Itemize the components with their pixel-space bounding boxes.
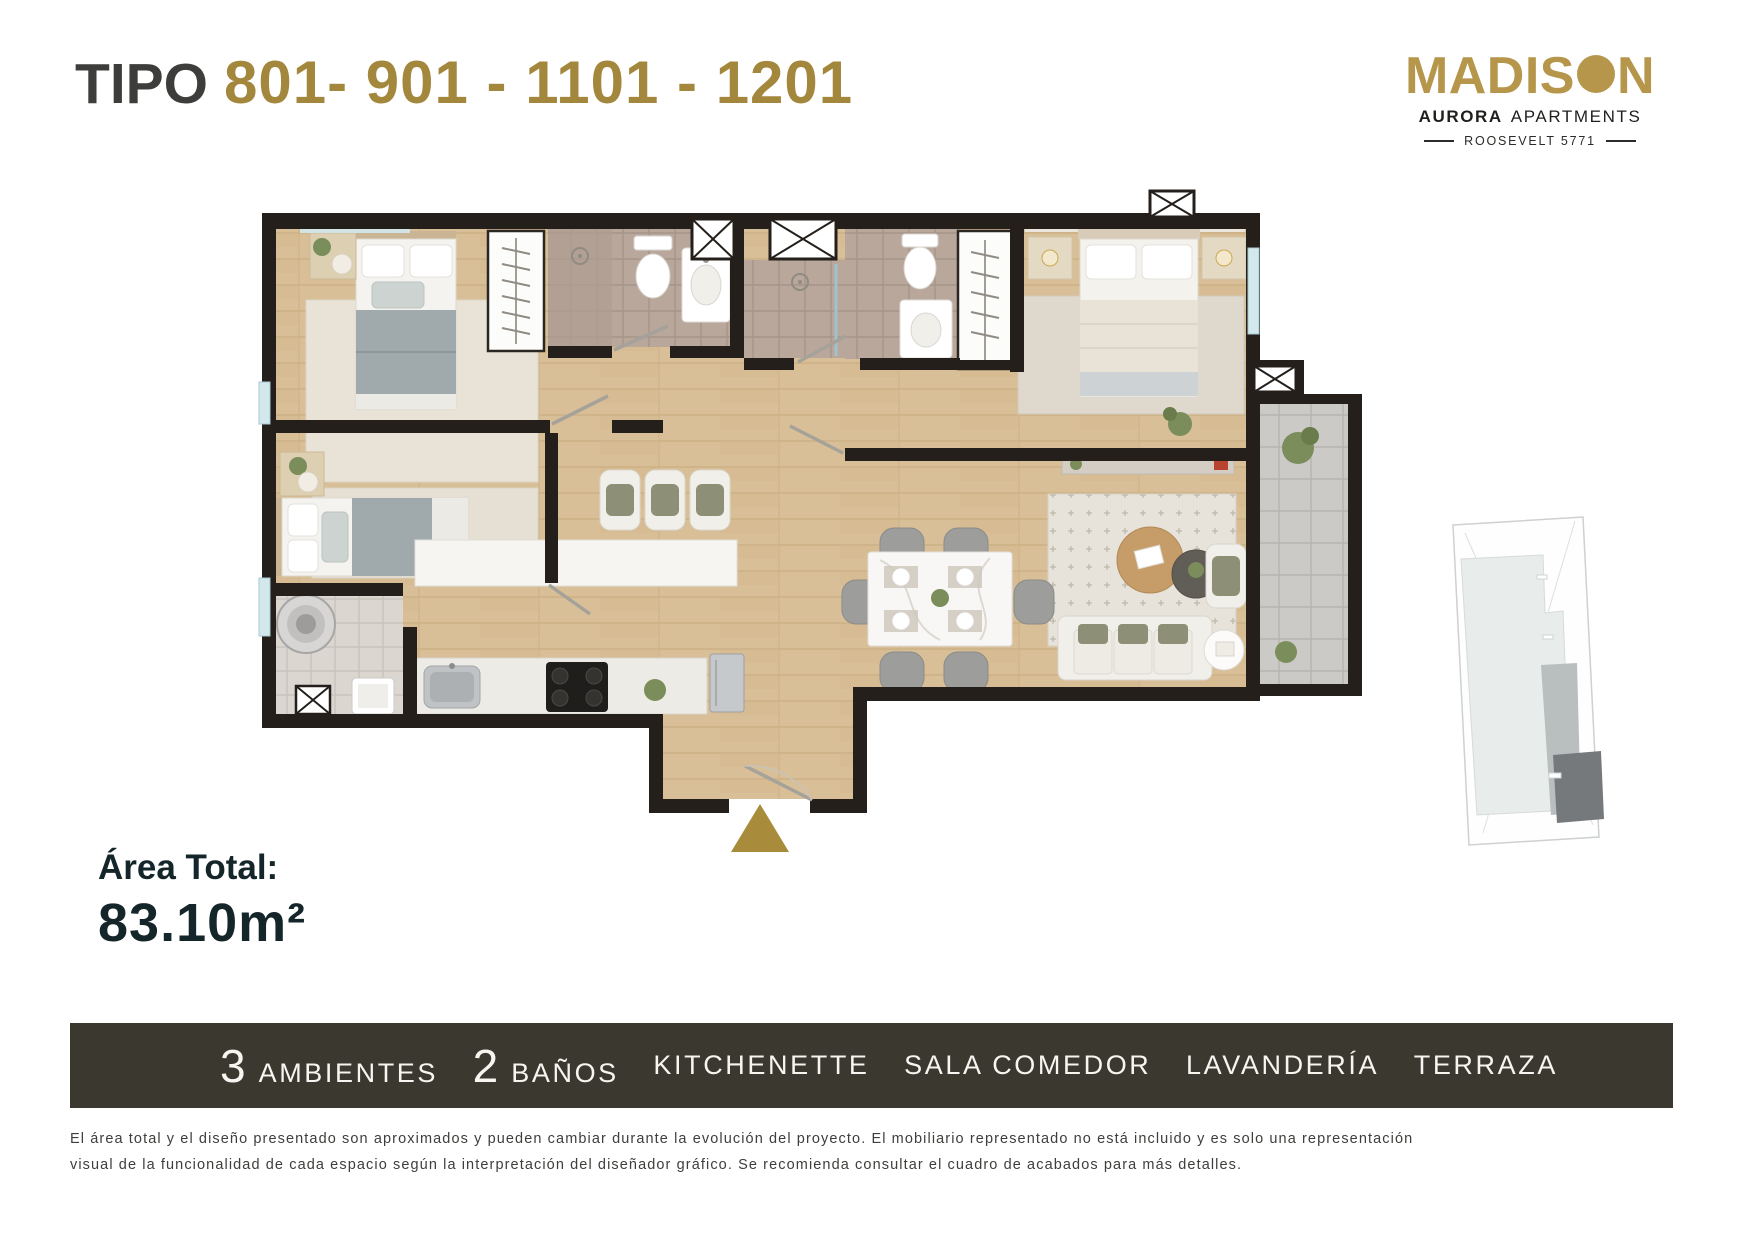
feature-terraza: TERRAZA <box>1414 1050 1558 1081</box>
disclaimer-line-1: El área total y el diseño presentado son… <box>70 1126 1720 1152</box>
brand-address: ROOSEVELT 5771 <box>1464 134 1596 148</box>
closet-2-icon <box>958 231 1012 369</box>
hall-chairs <box>600 470 730 530</box>
feature-lavanderia: LAVANDERÍA <box>1186 1050 1379 1081</box>
feature-label: BAÑOS <box>511 1058 619 1089</box>
page-title: TIPO 801- 901 - 1101 - 1201 <box>75 48 853 117</box>
disclaimer-line-2: visual de la funcionalidad de cada espac… <box>70 1152 1720 1178</box>
total-area-block: Área Total: 83.10m² <box>98 848 306 954</box>
bedroom-2-nightstand-icon <box>280 452 324 496</box>
feature-number: 3 <box>220 1039 246 1093</box>
site-plan-thumbnail <box>1453 517 1604 845</box>
kitchenette-icons <box>415 654 744 714</box>
feature-banos: 2 BAÑOS <box>473 1039 619 1093</box>
feature-label: SALA COMEDOR <box>904 1050 1151 1081</box>
brand-logo: MADISN AURORAAPARTMENTS ROOSEVELT 5771 <box>1384 50 1676 148</box>
brand-tagline: AURORAAPARTMENTS <box>1384 107 1676 127</box>
brand-tagline-bold: AURORA <box>1419 107 1503 126</box>
entrance-arrow-icon <box>731 804 789 852</box>
total-area-label: Área Total: <box>98 848 306 888</box>
brand-tagline-rest: APARTMENTS <box>1511 107 1642 126</box>
feature-label: LAVANDERÍA <box>1186 1050 1379 1081</box>
brand-name: MADISN <box>1384 50 1676 102</box>
address-rule-left <box>1424 140 1454 142</box>
address-rule-right <box>1606 140 1636 142</box>
features-bar: 3 AMBIENTES 2 BAÑOS KITCHENETTE SALA COM… <box>70 1023 1673 1108</box>
disclaimer-text: El área total y el diseño presentado son… <box>70 1126 1720 1178</box>
logo-o-disc-icon <box>1577 55 1615 93</box>
closet-1-icon <box>488 231 544 351</box>
feature-kitchenette: KITCHENETTE <box>653 1050 869 1081</box>
total-area-value: 83.10m² <box>98 892 306 954</box>
brand-name-part1: MADIS <box>1405 47 1575 105</box>
feature-ambientes: 3 AMBIENTES <box>220 1039 438 1093</box>
title-unit-numbers: 801- 901 - 1101 - 1201 <box>224 48 853 117</box>
bedroom-1-bed-icon <box>356 231 456 409</box>
feature-sala-comedor: SALA COMEDOR <box>904 1050 1151 1081</box>
feature-number: 2 <box>473 1039 499 1093</box>
title-prefix: TIPO <box>75 51 208 117</box>
brand-address-row: ROOSEVELT 5771 <box>1384 134 1676 148</box>
flyer-page: TIPO 801- 901 - 1101 - 1201 MADISN AUROR… <box>0 0 1754 1241</box>
feature-label: TERRAZA <box>1414 1050 1558 1081</box>
bedroom-1-nightstand-icon <box>310 233 356 279</box>
feature-label: KITCHENETTE <box>653 1050 869 1081</box>
bar-counter <box>415 540 737 586</box>
feature-label: AMBIENTES <box>259 1058 438 1089</box>
brand-name-part2: N <box>1617 47 1655 105</box>
